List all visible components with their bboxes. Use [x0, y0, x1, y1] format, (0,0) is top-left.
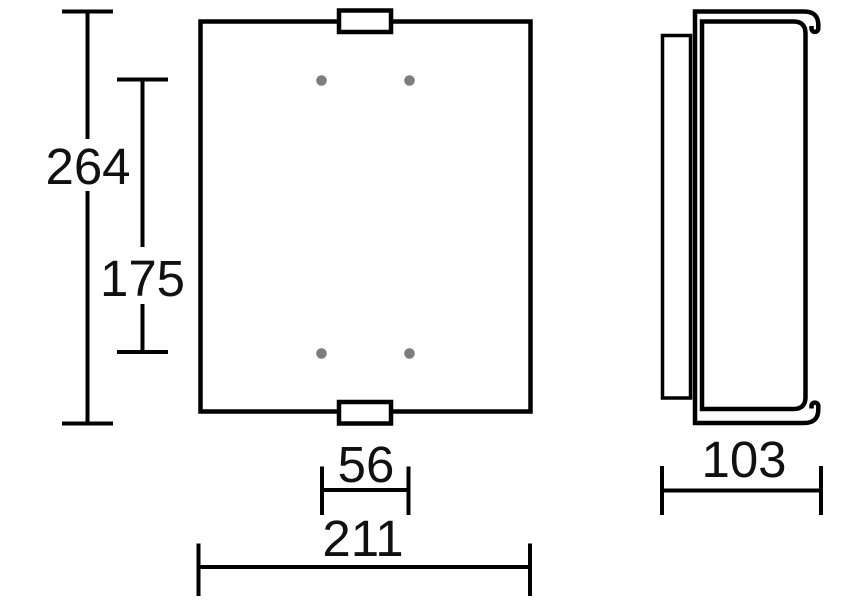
- screw-hole-top-left: [316, 75, 327, 86]
- dimension-depth: 103: [662, 431, 821, 515]
- front-panel-outline: [201, 22, 531, 412]
- side-view: [663, 12, 819, 424]
- dim-label-overall-height: 264: [45, 138, 130, 195]
- technical-drawing-canvas: 264 175 56 211 103: [0, 0, 865, 604]
- side-backplate: [663, 36, 691, 399]
- screw-hole-top-right: [404, 75, 415, 86]
- screw-hole-bottom-left: [316, 348, 327, 359]
- dimension-hole-spacing-vertical: 175: [100, 80, 185, 353]
- screw-hole-bottom-right: [404, 348, 415, 359]
- bottom-mounting-tab: [339, 402, 391, 424]
- dimension-overall-width: 211: [199, 510, 531, 596]
- dimension-overall-height: 264: [45, 12, 130, 424]
- dim-label-hole-spacing-horizontal: 56: [338, 436, 395, 493]
- side-body: [702, 22, 806, 410]
- dimension-hole-spacing-horizontal: 56: [322, 436, 409, 515]
- dim-label-overall-width: 211: [322, 510, 403, 567]
- top-mounting-tab: [339, 11, 391, 33]
- dim-label-depth: 103: [701, 431, 786, 488]
- front-view: [201, 11, 531, 424]
- dim-label-hole-spacing-vertical: 175: [100, 250, 185, 307]
- dimension-drawing: 264 175 56 211 103: [0, 0, 865, 604]
